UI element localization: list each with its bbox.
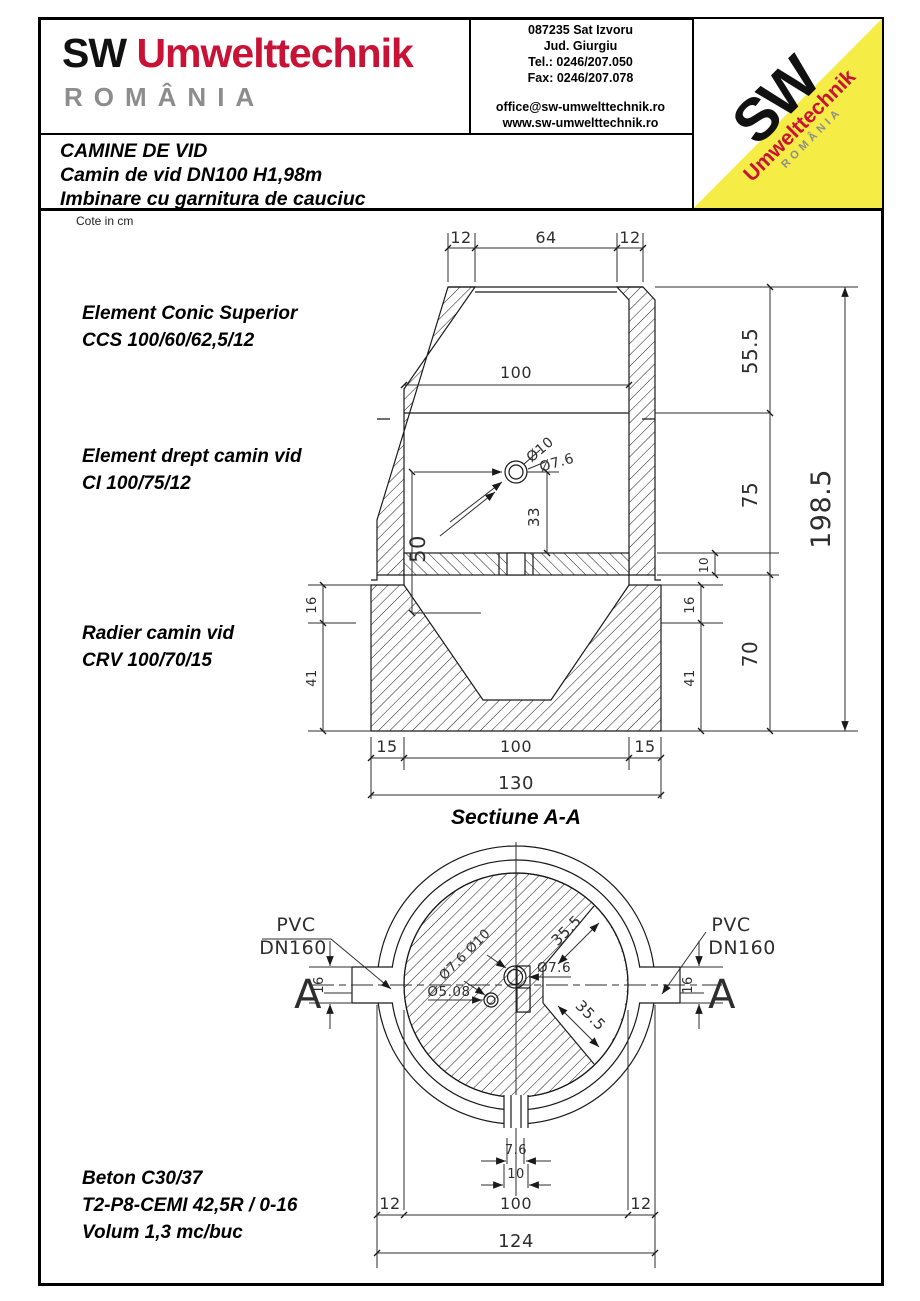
dim-stub-10: 10 bbox=[507, 1167, 525, 1182]
dim-total-height: 198.5 bbox=[806, 469, 837, 549]
title-line-3: Imbinare cu garnitura de cauciuc bbox=[60, 187, 366, 211]
company-logo: SW Umwelttechnik bbox=[62, 30, 413, 77]
dim-cone-height: 55.5 bbox=[738, 328, 762, 375]
pvc-label-left-1: PVC bbox=[276, 914, 315, 936]
contact-address-2: Jud. Giurgiu bbox=[470, 38, 691, 54]
dim-top-center: 64 bbox=[535, 228, 556, 247]
dim-top-right: 12 bbox=[619, 228, 640, 247]
corner-logo-sw-text: SW bbox=[694, 19, 882, 208]
header-divider-horizontal-1 bbox=[38, 133, 694, 135]
section-marker-right: A bbox=[708, 972, 736, 1018]
title-block: CAMINE DE VID Camin de vid DN100 H1,98m … bbox=[60, 139, 366, 211]
plan-bottom-stub bbox=[504, 1095, 528, 1128]
dim-shelf-10: 10 bbox=[697, 557, 711, 573]
dim-bottom-100: 100 bbox=[500, 737, 532, 756]
dim-plan-124: 124 bbox=[498, 1231, 534, 1252]
dim-top-left: 12 bbox=[450, 228, 471, 247]
dim-offset-33: 33 bbox=[525, 507, 543, 527]
contact-fax: Fax: 0246/207.078 bbox=[470, 70, 691, 86]
dim-bottom-130: 130 bbox=[498, 773, 534, 794]
dim-right-16: 16 bbox=[683, 596, 698, 614]
logo-country-text: ROMÂNIA bbox=[64, 82, 265, 113]
dim-shaft-height: 75 bbox=[738, 482, 762, 508]
dim-plan-100: 100 bbox=[500, 1194, 532, 1213]
dim-stub-76: 7.6 bbox=[505, 1143, 527, 1158]
dim-d76-horizontal: Ø7.6 bbox=[537, 960, 571, 976]
dim-bottom-15r: 15 bbox=[634, 737, 655, 756]
pvc-label-right-2: DN160 bbox=[708, 937, 776, 959]
contact-address-1: 087235 Sat Izvoru bbox=[470, 22, 691, 38]
dim-left-41: 41 bbox=[305, 669, 320, 687]
dim-plan-12l: 12 bbox=[379, 1194, 400, 1213]
title-line-2: Camin de vid DN100 H1,98m bbox=[60, 163, 366, 187]
dim-base-height: 70 bbox=[738, 641, 762, 667]
corner-logo-rotated: SW Umwelttechnik ROMÂNIA bbox=[694, 19, 882, 208]
dim-right-41: 41 bbox=[683, 669, 698, 687]
dim-right-stub-16: 16 bbox=[681, 976, 696, 994]
section-marker-left: A bbox=[294, 972, 322, 1018]
logo-sw-text: SW bbox=[62, 30, 126, 76]
dim-bottom-15l: 15 bbox=[376, 737, 397, 756]
dim-plan-12r: 12 bbox=[630, 1194, 651, 1213]
section-pipe-hole bbox=[505, 461, 527, 483]
section-left-wall bbox=[377, 287, 475, 575]
contact-tel: Tel.: 0246/207.050 bbox=[470, 54, 691, 70]
section-base bbox=[371, 585, 661, 731]
title-line-1: CAMINE DE VID bbox=[60, 139, 366, 163]
corner-logo: SW Umwelttechnik ROMÂNIA bbox=[694, 19, 882, 208]
pvc-label-left-2: DN160 bbox=[259, 937, 327, 959]
dim-d508: Ø5.08 bbox=[427, 984, 470, 1000]
dim-offset-50: 50 bbox=[406, 535, 430, 563]
section-view bbox=[371, 287, 661, 731]
dim-left-16: 16 bbox=[305, 596, 320, 614]
contact-website: www.sw-umwelttechnik.ro bbox=[470, 115, 691, 131]
technical-drawing: 12 64 12 100 Ø10 Ø7.6 50 33 10 bbox=[0, 210, 920, 1301]
contact-email: office@sw-umwelttechnik.ro bbox=[470, 99, 691, 115]
contact-block: 087235 Sat Izvoru Jud. Giurgiu Tel.: 024… bbox=[470, 22, 691, 131]
pvc-label-right-1: PVC bbox=[711, 914, 750, 936]
logo-brand-text: Umwelttechnik bbox=[136, 30, 412, 76]
section-right-wall bbox=[617, 287, 655, 575]
dim-inner-width: 100 bbox=[500, 363, 532, 382]
drawing-sheet: SW Umwelttechnik ROMÂNIA 087235 Sat Izvo… bbox=[0, 0, 920, 1301]
